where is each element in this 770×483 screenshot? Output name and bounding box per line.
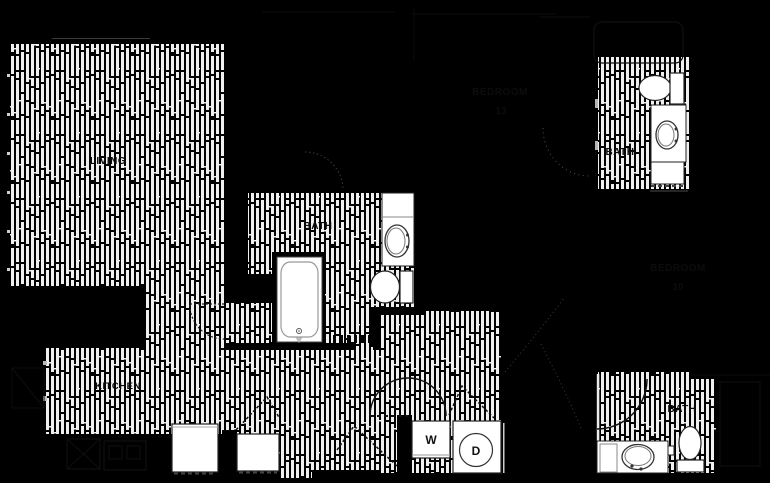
svg-text:KITCHEN: KITCHEN xyxy=(95,381,141,392)
svg-text:10: 10 xyxy=(672,282,684,293)
svg-text:BATH: BATH xyxy=(667,404,696,415)
svg-text:BEDROOM: BEDROOM xyxy=(650,263,706,274)
svg-text:LIVING: LIVING xyxy=(90,156,126,167)
svg-text:BEDROOM: BEDROOM xyxy=(472,87,528,98)
svg-text:BATH: BATH xyxy=(303,221,332,232)
svg-text:D: D xyxy=(472,444,481,458)
svg-text:W: W xyxy=(425,433,437,447)
svg-text:BATH: BATH xyxy=(605,147,634,158)
svg-text:13: 13 xyxy=(495,106,507,117)
